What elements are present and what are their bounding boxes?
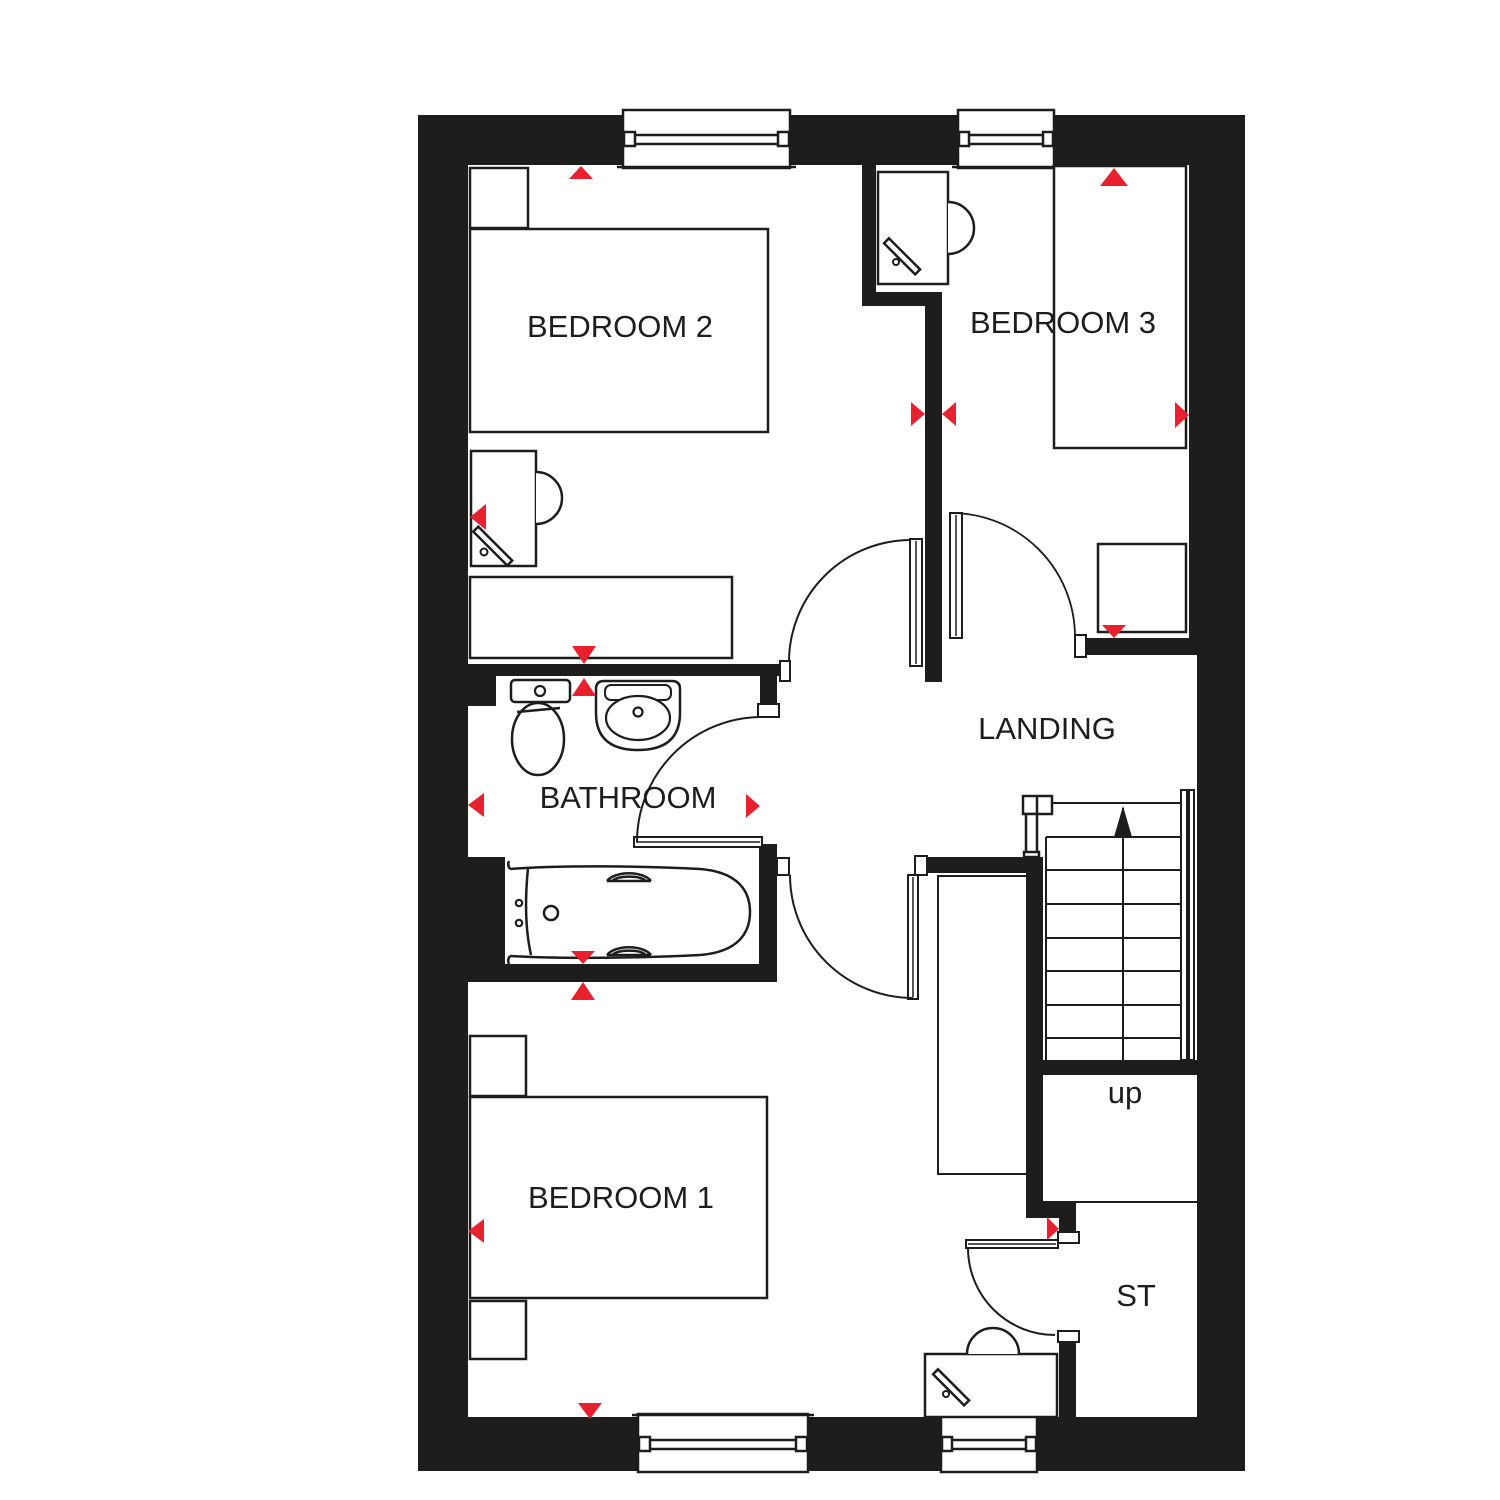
svg-text:BEDROOM 2: BEDROOM 2 [527, 309, 713, 344]
svg-text:BEDROOM 3: BEDROOM 3 [970, 305, 1156, 340]
svg-text:BATHROOM: BATHROOM [540, 780, 717, 815]
svg-text:LANDING: LANDING [978, 711, 1116, 746]
svg-text:BEDROOM 1: BEDROOM 1 [528, 1180, 714, 1215]
svg-text:ST: ST [1116, 1278, 1156, 1313]
svg-text:up: up [1108, 1075, 1142, 1110]
